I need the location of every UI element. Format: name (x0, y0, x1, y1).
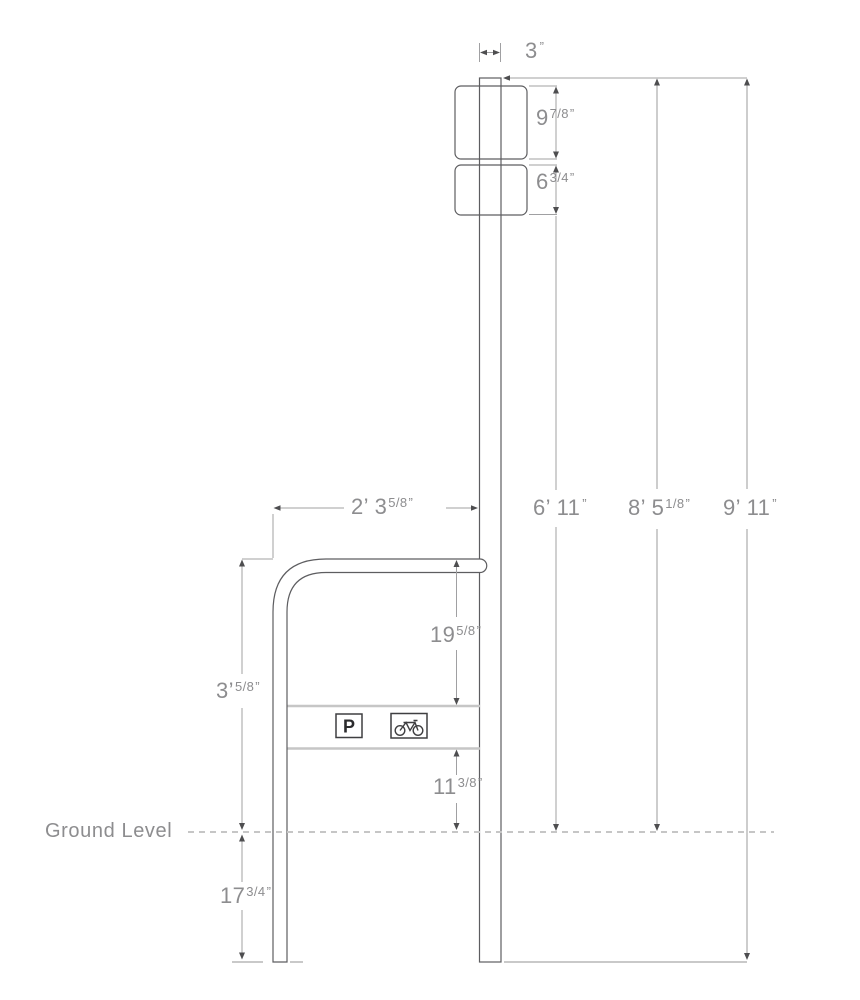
inch-mark: ” (570, 106, 575, 121)
dim-fraction: 1/8 (665, 496, 684, 511)
bike-rack-tube (273, 559, 487, 962)
arrow-down (553, 824, 559, 831)
dim-value: 19 (430, 622, 455, 647)
bike-rack-installation-diagram: P (0, 0, 860, 1000)
arrow-down (553, 207, 559, 214)
arrow-left (480, 50, 487, 55)
arrow-up (654, 79, 660, 86)
arrow-down (454, 698, 460, 705)
dim-label-upper-sign-height: 97/8” (536, 107, 575, 129)
dim-label-plate-to-ground: 113/8” (433, 776, 483, 798)
inch-mark: ” (255, 679, 260, 694)
dim-value: 17 (220, 883, 245, 908)
dim-value: 9 (536, 105, 549, 130)
inch-mark: ” (409, 495, 414, 510)
sign-panels (455, 86, 527, 215)
arrow-up (744, 79, 750, 86)
inch-mark: ” (570, 170, 575, 185)
inch-mark: ” (772, 496, 777, 511)
arrow-up (553, 87, 559, 94)
arrow-down (744, 953, 750, 960)
dim-label-lower-sign-height: 63/4” (536, 171, 575, 193)
parking-letter: P (343, 717, 355, 737)
dim-label-post-total-height: 9’ 11” (723, 497, 777, 519)
arrow-right (493, 50, 500, 55)
arrow-down (454, 823, 460, 830)
sign-post (480, 78, 502, 962)
ground-level-label: Ground Level (45, 821, 172, 841)
lower-sign-panel (455, 165, 527, 215)
arrow-down (654, 824, 660, 831)
dim-label-rack-top-to-plate: 195/8” (430, 624, 481, 646)
dim-label-post-width: 3” (525, 40, 544, 62)
dim-fraction: 3/4 (246, 884, 265, 899)
dim-label-rack-height: 3’5/8” (216, 680, 260, 702)
dim-value: 3’ (216, 678, 234, 703)
dim-value: 3 (525, 38, 538, 63)
inch-mark: ” (686, 496, 691, 511)
inch-mark: ” (540, 39, 545, 54)
dim-label-sign-clearance: 6’ 11” (533, 497, 587, 519)
dim-value: 8’ 5 (628, 495, 664, 520)
arrow-up (454, 750, 460, 757)
arrow-left (274, 505, 281, 510)
dim-label-post-above-ground: 8’ 51/8” (628, 497, 690, 519)
arrow-up (239, 560, 245, 567)
inch-mark: ” (267, 884, 272, 899)
arrow-down (239, 953, 245, 960)
arrow-down (239, 823, 245, 830)
dim-value: 6 (536, 169, 549, 194)
arrow-up (239, 835, 245, 842)
dim-fraction: 3/8 (458, 775, 477, 790)
dim-fraction: 3/4 (550, 170, 569, 185)
dim-label-rack-width: 2’ 35/8” (351, 496, 413, 518)
dim-value: 9’ 11 (723, 495, 770, 520)
arrow-left (503, 75, 510, 80)
arrow-right (471, 505, 478, 510)
dim-fraction: 5/8 (388, 495, 407, 510)
dim-value: 2’ 3 (351, 494, 387, 519)
dim-label-below-ground-depth: 173/4” (220, 885, 271, 907)
dim-fraction: 7/8 (550, 106, 569, 121)
inch-mark: ” (478, 775, 483, 790)
upper-sign-panel (455, 86, 527, 159)
arrow-down (553, 152, 559, 159)
dim-fraction: 5/8 (456, 623, 475, 638)
dim-fraction: 5/8 (235, 679, 254, 694)
inch-mark: ” (582, 496, 587, 511)
rack-sign-plate: P (287, 706, 480, 749)
dim-value: 6’ 11 (533, 495, 580, 520)
dim-value: 11 (433, 774, 457, 799)
inch-mark: ” (477, 623, 482, 638)
